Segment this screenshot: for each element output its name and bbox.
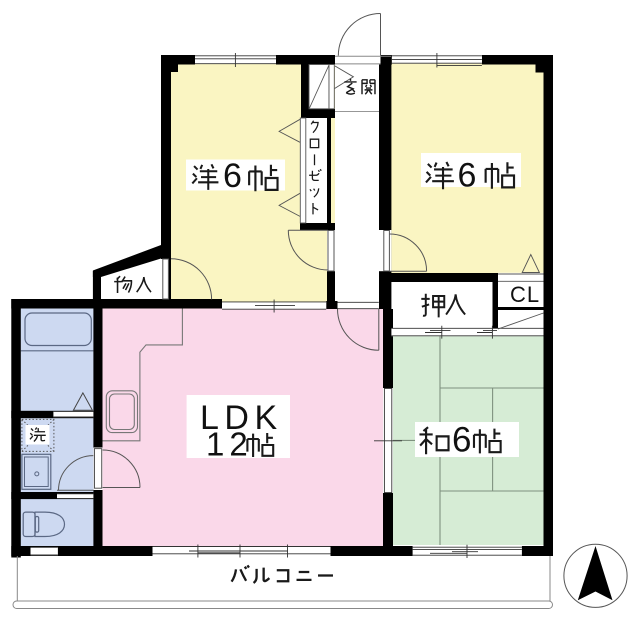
svg-text:6: 6 <box>223 157 242 195</box>
svg-text:12: 12 <box>206 426 253 463</box>
svg-text:6: 6 <box>452 421 471 460</box>
svg-text:6: 6 <box>458 157 477 195</box>
svg-text:CL: CL <box>510 282 540 307</box>
